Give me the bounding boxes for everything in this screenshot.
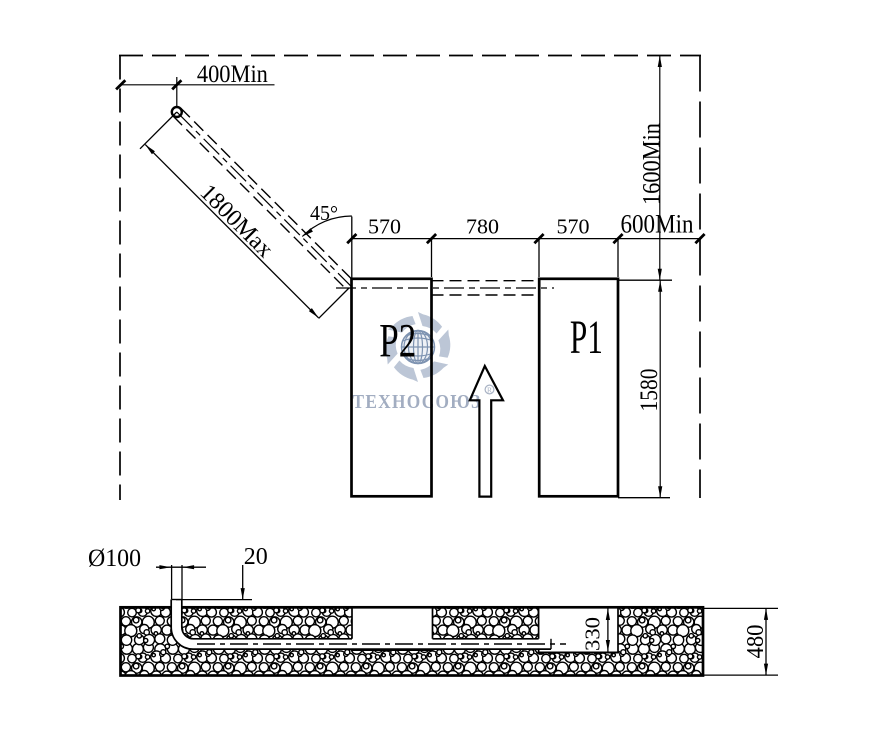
svg-text:45°: 45° bbox=[310, 201, 338, 225]
svg-text:480: 480 bbox=[743, 625, 769, 659]
svg-text:R: R bbox=[487, 385, 492, 394]
svg-text:P1: P1 bbox=[570, 311, 603, 364]
svg-text:780: 780 bbox=[466, 215, 499, 239]
svg-text:1580: 1580 bbox=[636, 369, 663, 412]
svg-text:600Min: 600Min bbox=[621, 210, 694, 239]
svg-text:570: 570 bbox=[557, 215, 590, 239]
svg-text:400Min: 400Min bbox=[197, 61, 268, 88]
svg-text:1600Min: 1600Min bbox=[639, 123, 666, 205]
svg-text:330: 330 bbox=[581, 617, 605, 651]
svg-text:20: 20 bbox=[244, 544, 268, 570]
svg-text:ТЕХНОСОЮЗ: ТЕХНОСОЮЗ bbox=[353, 391, 482, 413]
svg-text:570: 570 bbox=[368, 215, 401, 239]
svg-text:Ø100: Ø100 bbox=[88, 545, 141, 572]
